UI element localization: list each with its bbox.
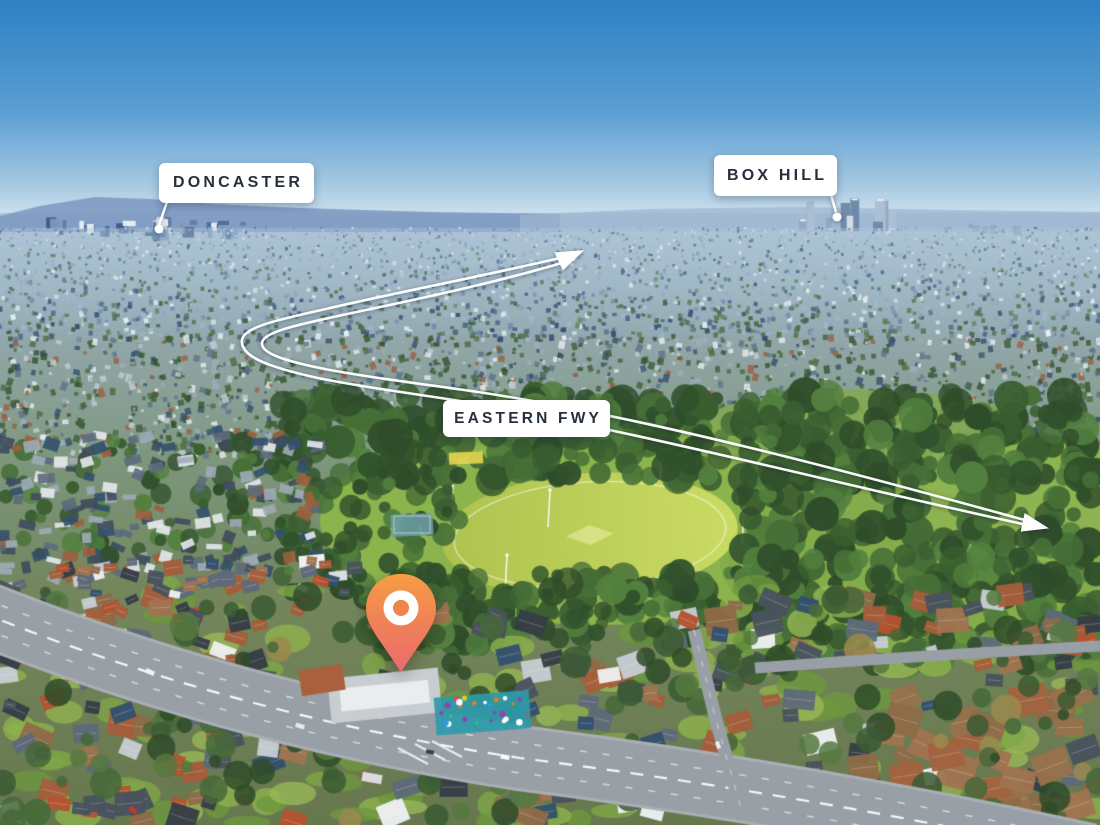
label-box-hill: BOX HILL bbox=[714, 155, 837, 196]
freeway-route-arrow bbox=[242, 241, 1051, 537]
label-eastern-fwy: EASTERN FWY bbox=[443, 400, 610, 437]
boxhill-pointer-line bbox=[831, 195, 842, 222]
arrowhead-east-icon bbox=[1021, 513, 1051, 537]
location-pin-icon bbox=[363, 572, 439, 676]
label-doncaster: DONCASTER bbox=[159, 163, 314, 203]
aerial-map-image: DONCASTER BOX HILL EASTERN FWY bbox=[0, 0, 1100, 825]
doncaster-pointer-line bbox=[155, 202, 168, 234]
arrowhead-northwest-icon bbox=[555, 241, 589, 271]
